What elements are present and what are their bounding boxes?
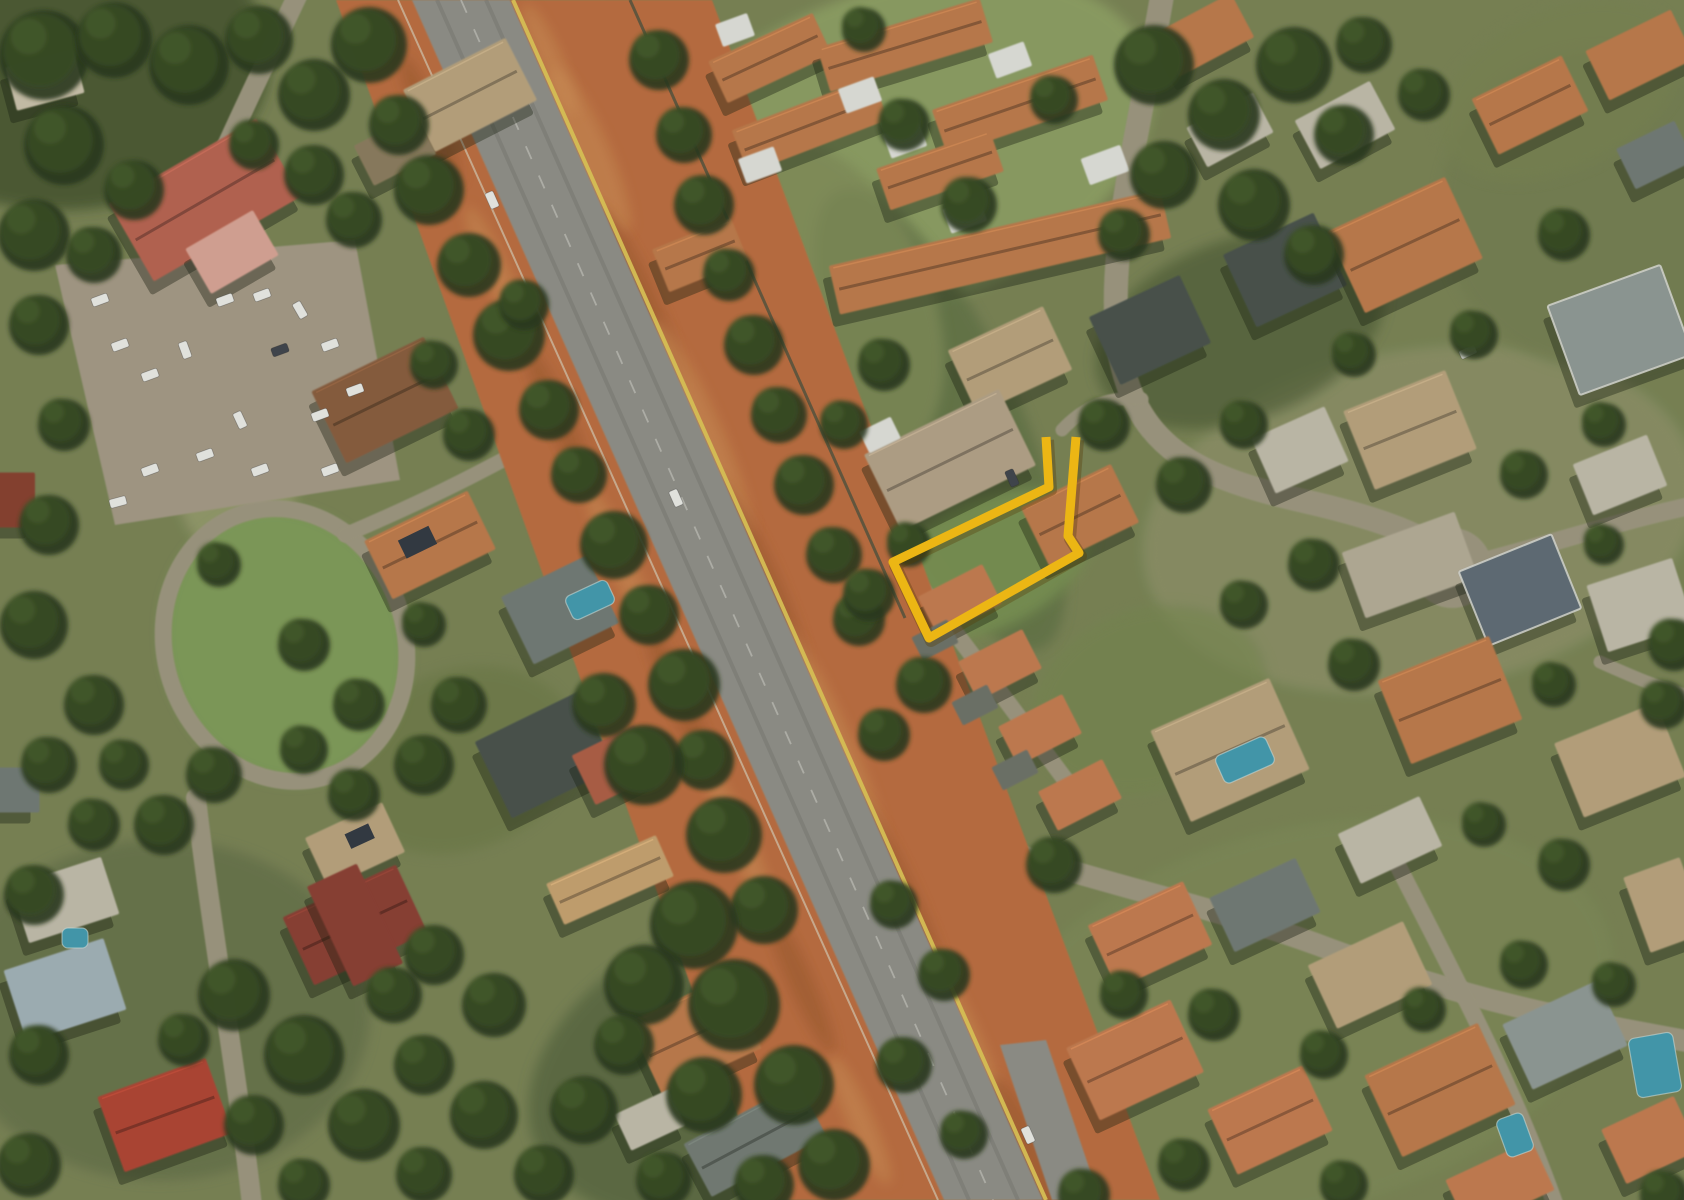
photo-tint [0, 0, 1684, 1200]
aerial-imagery [0, 0, 1684, 1200]
satellite-map-view [0, 0, 1684, 1200]
